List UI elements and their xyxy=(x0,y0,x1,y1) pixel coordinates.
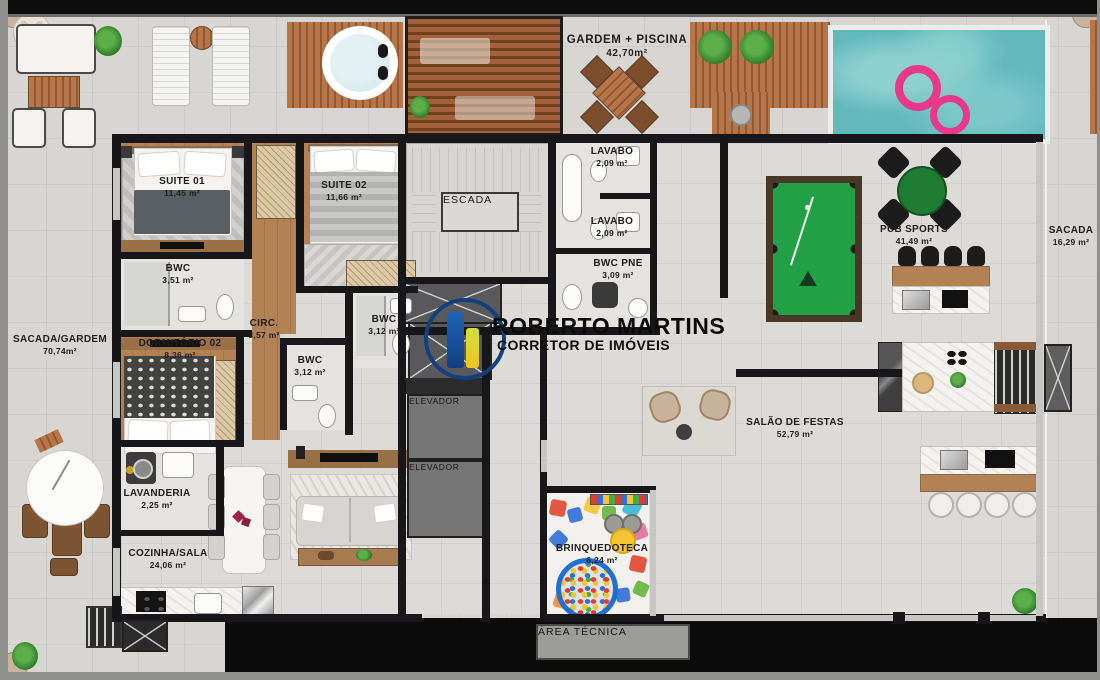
island-stool xyxy=(956,492,982,518)
island-stool xyxy=(1012,492,1038,518)
room-name: ÁREA TÉCNICA xyxy=(538,626,627,638)
room-label-salao-de-festas: SALÃO DE FESTAS52,79 m² xyxy=(746,417,844,439)
room-area: 8,36 m² xyxy=(139,350,222,360)
room-area: 41,49 m² xyxy=(880,236,948,246)
room-area: 3,51 m² xyxy=(162,275,193,285)
elevator-1: ELEVADOR xyxy=(407,394,489,460)
island-stool xyxy=(928,492,954,518)
logo-building-yellow xyxy=(466,328,479,368)
room-label-lavanderia: LAVANDERIA2,25 m² xyxy=(123,488,190,510)
shaft-wall xyxy=(400,378,490,394)
room-name: BWC xyxy=(372,314,397,325)
patio-umbrella xyxy=(26,450,104,526)
room-name: CIRC. xyxy=(250,318,279,329)
toilet-pne xyxy=(562,284,582,310)
island-counter xyxy=(920,446,1040,476)
vase xyxy=(296,446,305,459)
sink xyxy=(292,385,318,401)
window xyxy=(113,548,120,596)
cue-stick xyxy=(790,196,814,265)
room-name: ELEVADOR xyxy=(409,396,459,406)
circ-floor xyxy=(252,334,280,440)
toy-shelf xyxy=(590,494,648,505)
wall xyxy=(650,134,657,334)
side-table xyxy=(190,26,214,50)
left-frame xyxy=(0,0,8,680)
wall xyxy=(600,193,656,199)
pillow xyxy=(313,149,354,174)
sink xyxy=(178,306,206,322)
room-name: ESCADA xyxy=(443,194,492,206)
wall xyxy=(112,330,252,337)
wardrobe xyxy=(256,145,296,219)
terrace-sofa xyxy=(16,24,96,74)
puzzle-piece xyxy=(549,499,568,518)
wall xyxy=(236,330,244,447)
sun-lounger xyxy=(152,26,190,106)
room-label-sacada-gardem: SACADA/GARDEM70,74m² xyxy=(13,334,107,356)
glass-wall xyxy=(1036,142,1043,616)
plate xyxy=(912,372,934,394)
jacuzzi-headrest xyxy=(378,66,388,80)
logo-building-blue xyxy=(447,312,464,368)
watermark-subtitle: CORRETOR DE IMÓVEIS xyxy=(497,337,670,353)
laundry-sink xyxy=(162,452,194,478)
service-shaft xyxy=(1044,344,1072,412)
bar-stool xyxy=(898,246,916,266)
room-area: 2,09 m² xyxy=(591,158,634,168)
pergola-lounger xyxy=(455,96,535,120)
room-label-cozinha-sala: COZINHA/SALA24,06 m² xyxy=(128,548,207,570)
wall xyxy=(540,486,656,493)
toilet xyxy=(318,404,336,428)
elevator-2: ELEVADOR xyxy=(407,460,489,538)
island-wood xyxy=(920,474,1040,492)
tv xyxy=(320,453,378,462)
wall xyxy=(720,134,728,298)
dormitorio-blanket xyxy=(124,356,214,418)
room-area: 6,24 m² xyxy=(556,555,648,565)
room-name: BRINQUEDOTECA xyxy=(556,543,648,554)
room-area: 11,66 m² xyxy=(321,192,367,202)
jacuzzi-headrest xyxy=(378,44,388,58)
terrace-chair xyxy=(12,108,46,148)
bar-cooktop xyxy=(942,290,968,308)
room-area: 16,29 m² xyxy=(1049,237,1094,247)
pillow xyxy=(355,149,396,174)
island-cooktop xyxy=(985,450,1015,468)
terrace-chair xyxy=(62,108,96,148)
wall xyxy=(540,334,547,621)
nightstand xyxy=(232,146,244,158)
room-name: SACADA xyxy=(1049,225,1094,236)
room-label-suite02: SUITE 0211,66 m² xyxy=(321,180,367,202)
stair-treads xyxy=(518,192,542,232)
area-tecnica-box: ÁREA TÉCNICA xyxy=(536,624,690,660)
counter-plant-icon xyxy=(950,372,966,388)
room-label-bwc1: BWC3,12 m² xyxy=(368,314,399,336)
shaft-hatch xyxy=(122,620,168,652)
deck-fountain xyxy=(730,104,752,126)
wall xyxy=(280,338,352,345)
washer-door xyxy=(133,459,153,479)
pool-table xyxy=(766,176,862,322)
salao-plant-icon xyxy=(1012,588,1038,614)
wall xyxy=(398,334,406,622)
room-label-dormitorio02: DORMITÓRIO 028,36 m² xyxy=(139,338,222,360)
party-table xyxy=(0,192,64,256)
ball-pit xyxy=(556,558,618,620)
room-label-suite01: SUITE 0111,45 m² xyxy=(159,176,205,198)
wall xyxy=(398,277,556,284)
room-area: 11,45 m² xyxy=(159,188,205,198)
room-area: 42,70m² xyxy=(567,48,687,60)
room-area: 70,74m² xyxy=(13,346,107,356)
watermark-title: ROBERTO MARTINS xyxy=(492,313,725,340)
room-name: BWC xyxy=(298,355,323,366)
deck-plant-icon xyxy=(698,30,732,64)
garden-plant-icon xyxy=(12,642,38,670)
dining-chair xyxy=(208,534,225,560)
room-name: COZINHA/SALA xyxy=(128,548,207,559)
table-decor xyxy=(318,551,334,560)
stair-treads xyxy=(412,148,542,192)
dining-chair xyxy=(263,534,280,560)
pergola-lounger xyxy=(420,38,490,64)
pool-float xyxy=(930,95,970,135)
pillow xyxy=(373,503,397,524)
wall xyxy=(244,134,252,259)
room-name: LAVANDERIA xyxy=(123,488,190,499)
room-name: DORMITÓRIO 02 xyxy=(139,338,222,349)
sofa-seam xyxy=(349,498,351,542)
room-label-gardem-piscina: GARDEM + PISCINA 42,70m² xyxy=(567,34,687,60)
bar-stool xyxy=(944,246,962,266)
wall xyxy=(112,440,242,447)
cue-ball xyxy=(805,205,810,210)
room-name: SUITE 02 xyxy=(321,180,367,191)
wardrobe xyxy=(214,360,236,446)
wall xyxy=(280,345,287,430)
room-name: BWC xyxy=(166,263,191,274)
room-label-circ: CIRC.3,57 m² xyxy=(248,318,279,340)
room-area: 2,25 m² xyxy=(123,500,190,510)
wall xyxy=(112,530,224,536)
room-label-bwc2: BWC3,12 m² xyxy=(294,355,325,377)
floor-plan: GARDEM + PISCINA 42,70m² xyxy=(0,0,1100,680)
room-name: ELEVADOR xyxy=(409,462,459,472)
card-table xyxy=(897,166,947,216)
sun-lounger xyxy=(212,26,250,106)
pillow xyxy=(183,151,227,178)
cooktop xyxy=(136,591,166,612)
bar-sink xyxy=(902,290,930,310)
deck-plant-icon xyxy=(740,30,774,64)
room-name: SALÃO DE FESTAS xyxy=(746,417,844,428)
side-table xyxy=(676,424,692,440)
room-area: 2,09 m² xyxy=(591,228,634,238)
pillow xyxy=(137,151,181,178)
terrace-coffee-table xyxy=(28,76,80,108)
room-label-lavabo1: LAVABO2,09 m² xyxy=(591,146,634,168)
room-name: LAVABO xyxy=(591,146,634,157)
kitchen-sink xyxy=(194,593,222,614)
room-area: 24,06 m² xyxy=(128,560,207,570)
room-area: 52,79 m² xyxy=(746,429,844,439)
lavabo-counter xyxy=(562,154,582,222)
room-label-brinquedoteca: BRINQUEDOTECA6,24 m² xyxy=(556,543,648,565)
door-opening xyxy=(541,440,547,472)
wall-post xyxy=(978,612,990,624)
bar-stool xyxy=(967,246,985,266)
tv xyxy=(160,242,204,249)
room-name: LAVABO xyxy=(591,216,634,227)
wall xyxy=(118,252,250,259)
escada-label-box: ESCADA xyxy=(441,192,519,232)
room-label-pub-sports: PUB SPORTS41,49 m² xyxy=(880,224,948,246)
pergola-plant-icon xyxy=(410,96,430,118)
stair-treads xyxy=(412,192,436,232)
wall xyxy=(296,134,304,293)
room-name: SACADA/GARDEM xyxy=(13,334,107,345)
wall xyxy=(345,293,353,435)
room-name: GARDEM + PISCINA xyxy=(567,34,687,46)
wall xyxy=(216,447,224,533)
table-plant-icon xyxy=(356,549,372,561)
glass-wall xyxy=(650,490,656,616)
jacuzzi-water xyxy=(330,34,390,92)
rack-triangle xyxy=(799,271,817,286)
wall xyxy=(398,134,406,334)
room-area: 3,09 m² xyxy=(593,270,642,280)
grill-counter xyxy=(878,342,904,412)
room-area: 3,57 m² xyxy=(248,330,279,340)
wheelchair-icon xyxy=(592,282,618,308)
island-sink xyxy=(940,450,968,470)
room-name: BWC PNE xyxy=(593,258,642,269)
room-label-lavabo2: LAVABO2,09 m² xyxy=(591,216,634,238)
wall-post xyxy=(893,612,905,624)
window xyxy=(113,362,120,418)
wall xyxy=(736,369,902,377)
wall xyxy=(548,134,556,334)
toilet xyxy=(216,294,234,320)
room-name: PUB SPORTS xyxy=(880,224,948,235)
room-name: SUITE 01 xyxy=(159,176,205,187)
counter-decor xyxy=(946,350,968,365)
party-table xyxy=(0,256,64,320)
nightstand xyxy=(120,146,132,158)
terrace-plant-icon xyxy=(94,26,122,56)
wall xyxy=(482,334,490,622)
stair-treads xyxy=(412,232,542,272)
grill-cap xyxy=(994,342,1036,350)
room-label-sacada: SACADA16,29 m² xyxy=(1049,225,1094,247)
pillow xyxy=(301,503,325,524)
dining-chair xyxy=(263,504,280,530)
grill-cap xyxy=(994,404,1036,412)
bottom-frame xyxy=(0,672,1100,680)
window xyxy=(113,168,120,220)
coffee-table xyxy=(298,548,404,566)
bar-counter-wood xyxy=(892,266,990,288)
island-stool xyxy=(984,492,1010,518)
wall xyxy=(556,248,656,254)
bar-stool xyxy=(921,246,939,266)
patio-chair xyxy=(50,558,78,576)
room-area: 3,12 m² xyxy=(294,367,325,377)
dining-chair xyxy=(263,474,280,500)
room-area: 3,12 m² xyxy=(368,326,399,336)
room-label-bwc-pne: BWC PNE3,09 m² xyxy=(593,258,642,280)
room-label-bwc-suite: BWC3,51 m² xyxy=(162,263,193,285)
